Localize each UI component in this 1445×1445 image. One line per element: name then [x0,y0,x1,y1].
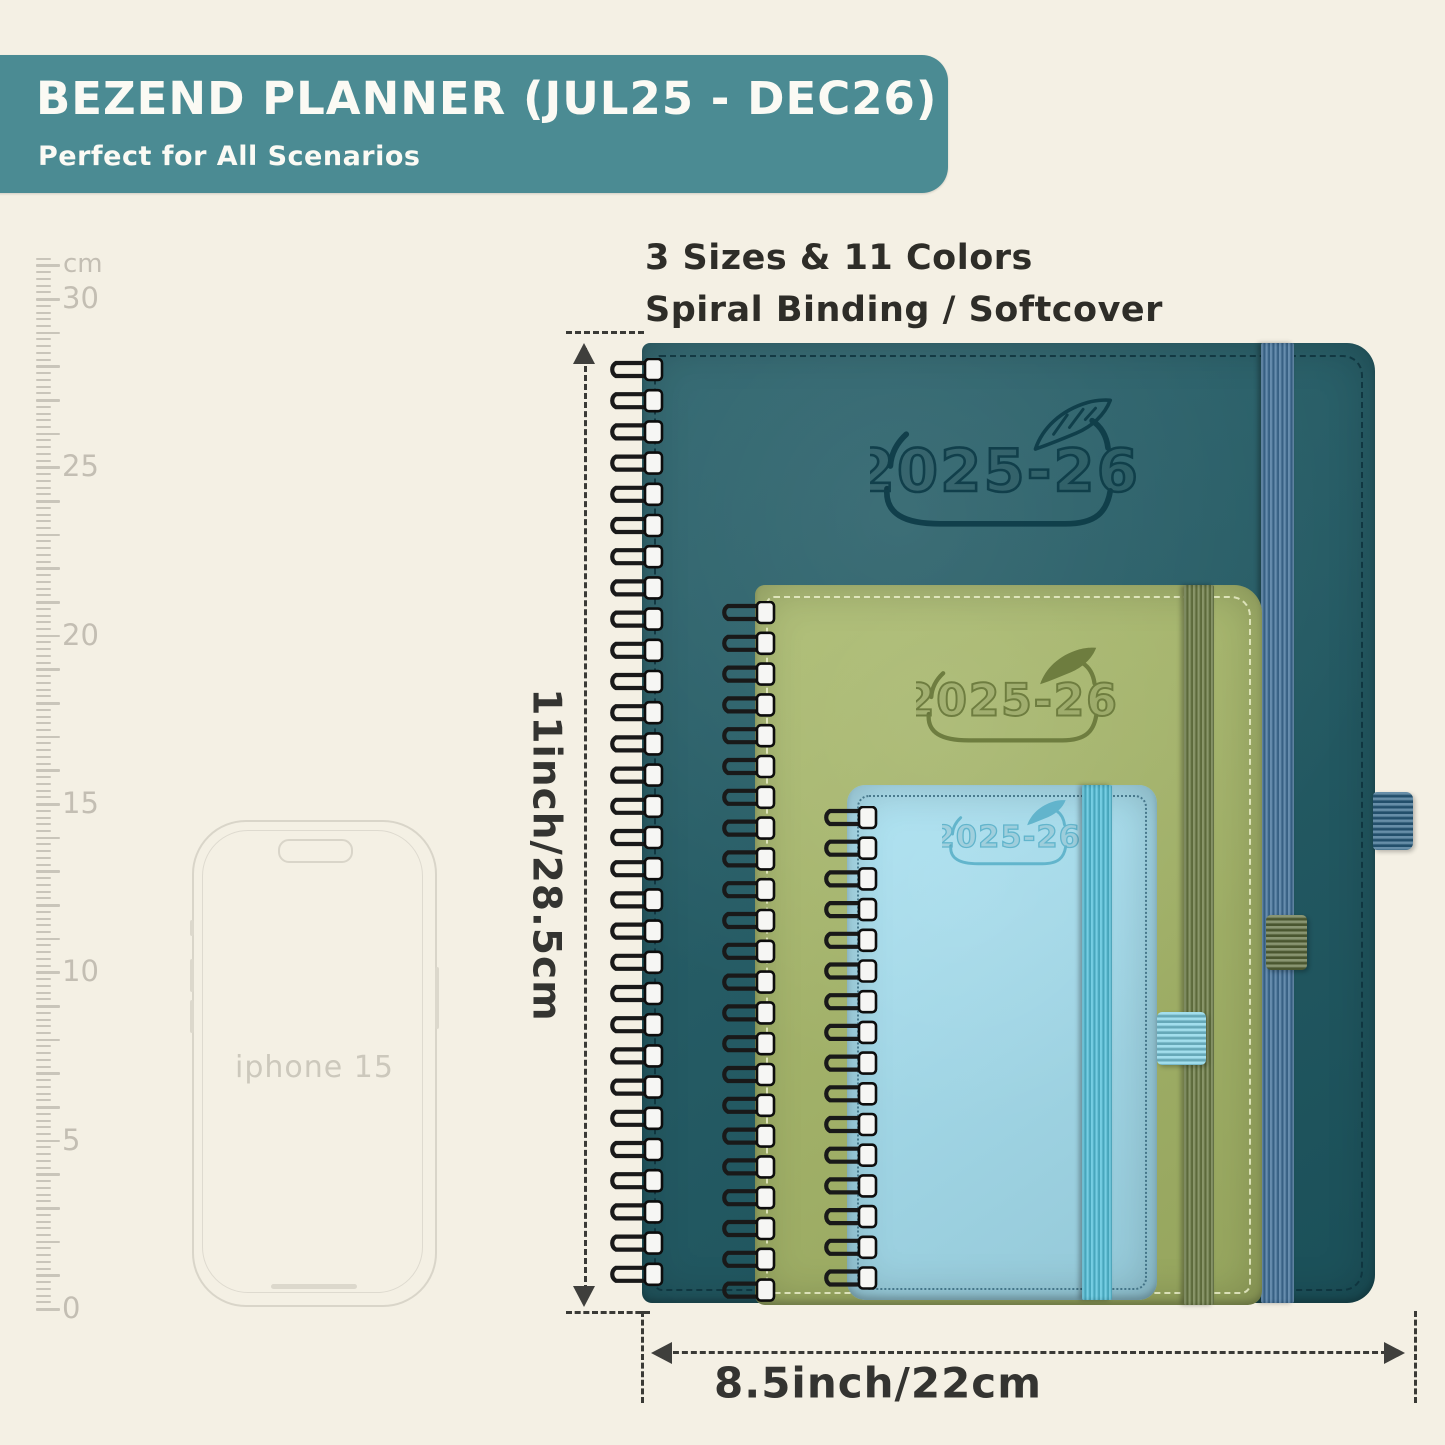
feature-sizes-colors: 3 Sizes & 11 Colors [645,238,1033,278]
ruler-tick [36,1106,60,1109]
ruler-tick [36,413,51,415]
ruler-tick [36,312,51,314]
ruler-tick [36,1012,51,1014]
ruler-tick [36,958,51,960]
ruler-tick [36,749,51,751]
ruler-tick [36,742,51,744]
spiral-coil [724,787,774,808]
ruler-tick [36,581,51,583]
feature-binding: Spiral Binding / Softcover [645,290,1163,330]
ruler-tick [36,399,60,402]
ruler-tick [36,1093,51,1095]
spiral-coil [724,602,774,623]
ruler-tick [36,803,60,806]
ruler-tick [36,1281,51,1283]
spiral-coil [724,633,774,654]
ruler-tick [36,843,51,845]
spiral-coil [724,1249,774,1270]
planner-year-label: 2025-26 [916,676,1119,727]
spiral-coil [612,889,662,910]
ruler-tick [36,487,51,489]
ruler-tick [36,567,60,570]
title-banner: BEZEND PLANNER (JUL25 - DEC26) Perfect f… [0,55,948,193]
ruler-tick [36,944,51,946]
ruler-unit-label: cm [63,249,103,279]
ruler-tick [36,574,51,576]
ruler-tick [36,608,51,610]
ruler-tick [36,1120,51,1122]
ruler-number-label: 0 [62,1291,80,1325]
spiral-coil [612,390,662,411]
spiral-coil [724,1187,774,1208]
ruler-tick [36,695,51,697]
ruler-tick [36,615,51,617]
spiral-coil [724,1033,774,1054]
ruler-tick [36,493,51,495]
ruler-tick [36,965,51,967]
arrow-left-icon [651,1342,672,1364]
ruler-tick [36,675,51,677]
ruler-tick [36,1126,51,1128]
spiral-coil [826,1145,876,1166]
ruler-tick [36,924,51,926]
spiral-coil [826,1053,876,1074]
ruler-tick [36,359,51,361]
spiral-coil [612,1139,662,1160]
ruler-tick [36,426,51,428]
ruler-number-label: 5 [62,1123,80,1157]
planner-large-pen-loop [1373,792,1413,850]
planner-small-spiral-binding [817,806,879,1293]
ruler-tick [36,1086,51,1088]
planner-large-spiral-binding [603,358,665,1289]
ruler-tick [36,534,60,537]
ruler-tick [36,258,51,260]
ruler-tick [36,790,51,792]
spiral-coil [612,1233,662,1254]
planner-medium-spiral-binding [715,601,777,1305]
ruler-tick [36,904,60,907]
ruler-tick [36,911,51,913]
spiral-coil [826,1206,876,1227]
spiral-coil [724,694,774,715]
spiral-coil [612,359,662,380]
ruler-tick [36,318,51,320]
height-dimension-label: 11inch/28.5cm [524,688,569,1022]
feather-barbs [1054,408,1096,434]
spiral-coil [826,1083,876,1104]
spiral-coil [724,972,774,993]
home-indicator [271,1284,357,1289]
ruler-tick [36,884,51,886]
ruler-tick [36,1025,51,1027]
ruler-tick [36,1295,51,1297]
spiral-coil [612,1014,662,1035]
ruler-tick [36,561,51,563]
spiral-coil [826,899,876,920]
ruler-number-label: 15 [62,786,99,820]
height-dimension-line [584,348,587,1300]
planner-medium-elastic-band [1184,585,1214,1305]
dynamic-island [278,839,353,863]
ruler-tick [36,379,51,381]
ruler-tick [36,271,51,273]
ruler-tick [36,992,51,994]
spiral-coil [612,1077,662,1098]
ruler-tick [36,998,51,1000]
ruler-tick [36,439,51,441]
volume-down-button [190,1000,194,1033]
ruler-tick [36,891,51,893]
ruler-tick [36,830,51,832]
ruler-tick [36,527,51,529]
ruler-tick [36,763,51,765]
spiral-coil [724,910,774,931]
spiral-coil [612,421,662,442]
planner-large-logo: 2025-26 [870,398,1142,534]
ruler-tick [36,594,51,596]
spiral-coil [612,484,662,505]
ruler-tick [36,332,60,335]
ruler-tick [36,1274,60,1277]
ruler-tick [36,460,51,462]
ruler-tick [36,682,51,684]
ruler-tick [36,628,51,630]
spiral-coil [724,756,774,777]
spiral-coil [724,941,774,962]
spiral-coil [826,961,876,982]
mute-switch [190,920,194,936]
ruler-tick [36,392,51,394]
ruler-tick [36,1066,51,1068]
ruler-tick [36,641,51,643]
ruler-tick [36,386,51,388]
spiral-coil [724,1064,774,1085]
arrow-up-icon [573,343,595,364]
ruler-tick [36,662,51,664]
spiral-coil [612,733,662,754]
ruler-tick [36,298,60,301]
spiral-coil [826,1237,876,1258]
ruler-tick [36,453,51,455]
ruler-tick [36,433,60,436]
ruler-tick [36,1234,51,1236]
ruler-tick [36,776,51,778]
spiral-coil [724,1218,774,1239]
ruler-tick [36,1200,51,1202]
planner-year-label: 2025-26 [870,436,1140,505]
ruler-tick [36,1039,60,1042]
ruler-tick [36,601,60,604]
ruler-tick [36,520,51,522]
width-dimension-line [655,1351,1387,1354]
ruler-tick [36,931,51,933]
ruler-tick [36,1052,51,1054]
ruler-tick [36,325,51,327]
ruler-tick [36,1099,51,1101]
spiral-coil [612,640,662,661]
width-extension-line-right [1414,1311,1417,1403]
ruler-tick [36,918,51,920]
ruler-tick [36,837,60,840]
ruler-tick [36,345,51,347]
spiral-coil [826,1268,876,1289]
ruler-tick [36,729,51,731]
ruler-tick [36,1207,60,1210]
spiral-coil [612,453,662,474]
ruler-tick [36,796,51,798]
ruler-tick [36,978,51,980]
spiral-coil [612,577,662,598]
spiral-coil [612,1201,662,1222]
spiral-coil [612,1170,662,1191]
ruler-tick [36,1032,51,1034]
spiral-coil [612,827,662,848]
spiral-coil [612,702,662,723]
ruler-tick [36,1261,51,1263]
ruler-number-label: 10 [62,954,99,988]
spiral-coil [826,868,876,889]
spiral-coil [612,765,662,786]
spiral-coil [612,609,662,630]
ruler-tick [36,756,51,758]
ruler-tick [36,870,60,873]
planner-small-elastic-band [1082,785,1112,1300]
spiral-coil [826,807,876,828]
ruler-tick [36,547,51,549]
ruler-tick [36,1268,51,1270]
ruler-number-label: 20 [62,618,99,652]
ruler-tick [36,716,51,718]
ruler-tick [36,864,51,866]
ruler-tick [36,1180,51,1182]
ruler-tick [36,722,51,724]
width-extension-line-left [641,1311,644,1403]
spiral-coil [724,1280,774,1301]
ruler-tick [36,305,51,307]
planner-small-pen-loop [1157,1012,1206,1065]
ruler-tick [36,540,51,542]
spiral-coil [826,930,876,951]
ruler-tick [36,1173,60,1176]
spiral-coil [724,818,774,839]
ruler-tick [36,621,51,623]
width-dimension-label: 8.5inch/22cm [714,1359,1042,1408]
spiral-coil [612,1045,662,1066]
spiral-coil [612,1264,662,1285]
iphone-label: iphone 15 [194,1050,435,1085]
ruler-tick [36,1005,60,1008]
spiral-coil [826,1175,876,1196]
spiral-coil [724,879,774,900]
spiral-coil [724,1095,774,1116]
spiral-coil [724,725,774,746]
ruler-tick [36,1241,60,1244]
ruler-tick [36,1227,51,1229]
arrow-right-icon [1384,1342,1405,1364]
planner-small-logo: 2025-26 [942,799,1082,869]
product-subtitle: Perfect for All Scenarios [38,141,421,172]
ruler-tick [36,1288,51,1290]
ruler-tick [36,419,51,421]
product-infographic: BEZEND PLANNER (JUL25 - DEC26) Perfect f… [0,0,1445,1445]
ruler-tick [36,1133,51,1135]
ruler-tick [36,473,51,475]
ruler-tick [36,635,60,638]
ruler-tick [36,971,60,974]
spiral-coil [724,848,774,869]
ruler-tick [36,446,51,448]
power-button [435,967,439,1029]
ruler-tick [36,264,60,267]
ruler-tick [36,285,51,287]
ruler-tick [36,507,51,509]
ruler-tick [36,1113,51,1115]
ruler-tick [36,823,51,825]
ruler-tick [36,1301,51,1303]
ruler-tick [36,1072,60,1075]
ruler-tick [36,588,51,590]
ruler-tick [36,1187,51,1189]
planner-large-elastic-band [1261,343,1294,1303]
ruler-tick [36,1308,60,1311]
ruler-tick [36,1146,51,1148]
ruler-tick [36,1247,51,1249]
ruler-tick [36,668,60,671]
ruler-tick [36,850,51,852]
ruler-tick [36,365,60,368]
ruler-tick [36,1059,51,1061]
spiral-coil [826,1114,876,1135]
ruler-tick [36,1079,51,1081]
ruler-tick [36,352,51,354]
ruler-tick [36,291,51,293]
spiral-coil [612,858,662,879]
spiral-coil [724,1156,774,1177]
ruler-tick [36,1019,51,1021]
ruler-tick [36,817,51,819]
ruler-tick [36,480,51,482]
spiral-coil [612,1108,662,1129]
spiral-coil [612,671,662,692]
ruler-tick [36,769,60,772]
ruler-tick [36,655,51,657]
ruler-tick [36,406,51,408]
spiral-coil [612,921,662,942]
ruler-tick [36,338,51,340]
spiral-coil [826,991,876,1012]
spiral-coil [612,952,662,973]
spiral-coil [612,515,662,536]
ruler-tick [36,278,51,280]
planner-medium-pen-loop [1266,915,1307,970]
ruler-tick [36,1045,51,1047]
ruler-tick [36,648,51,650]
spiral-coil [826,838,876,859]
ruler-tick [36,689,51,691]
arrow-down-icon [573,1286,595,1307]
planner-year-label: 2025-26 [942,820,1081,855]
ruler-tick [36,985,51,987]
planner-medium-logo: 2025-26 [916,646,1120,748]
spiral-coil [612,796,662,817]
ruler-tick [36,709,51,711]
ruler-tick [36,897,51,899]
ruler-tick [36,554,51,556]
ruler-tick [36,1221,51,1223]
ruler-tick [36,1140,60,1143]
ruler-tick [36,810,51,812]
ruler-tick [36,1214,51,1216]
ruler-tick [36,877,51,879]
volume-up-button [190,959,194,992]
ruler-tick [36,1153,51,1155]
height-extension-line-top [566,331,644,334]
ruler-number-label: 25 [62,449,99,483]
ruler-tick [36,1160,51,1162]
ruler-tick [36,702,60,705]
ruler-number-label: 30 [62,281,99,315]
ruler-tick [36,1194,51,1196]
spiral-coil [724,664,774,685]
product-title: BEZEND PLANNER (JUL25 - DEC26) [36,72,937,125]
ruler-tick [36,1254,51,1256]
spiral-coil [612,983,662,1004]
ruler-tick [36,951,51,953]
iphone-outline: iphone 15 [192,820,437,1307]
spiral-coil [724,1126,774,1147]
spiral-coil [612,546,662,567]
ruler-tick [36,857,51,859]
ruler-tick [36,466,60,469]
ruler-tick [36,938,60,941]
spiral-coil [724,1002,774,1023]
ruler-tick [36,783,51,785]
ruler-tick [36,736,60,739]
ruler-tick [36,500,60,503]
ruler-tick [36,372,51,374]
ruler-tick [36,1167,51,1169]
height-extension-line-bottom [566,1311,650,1314]
spiral-coil [826,1022,876,1043]
ruler-tick [36,514,51,516]
